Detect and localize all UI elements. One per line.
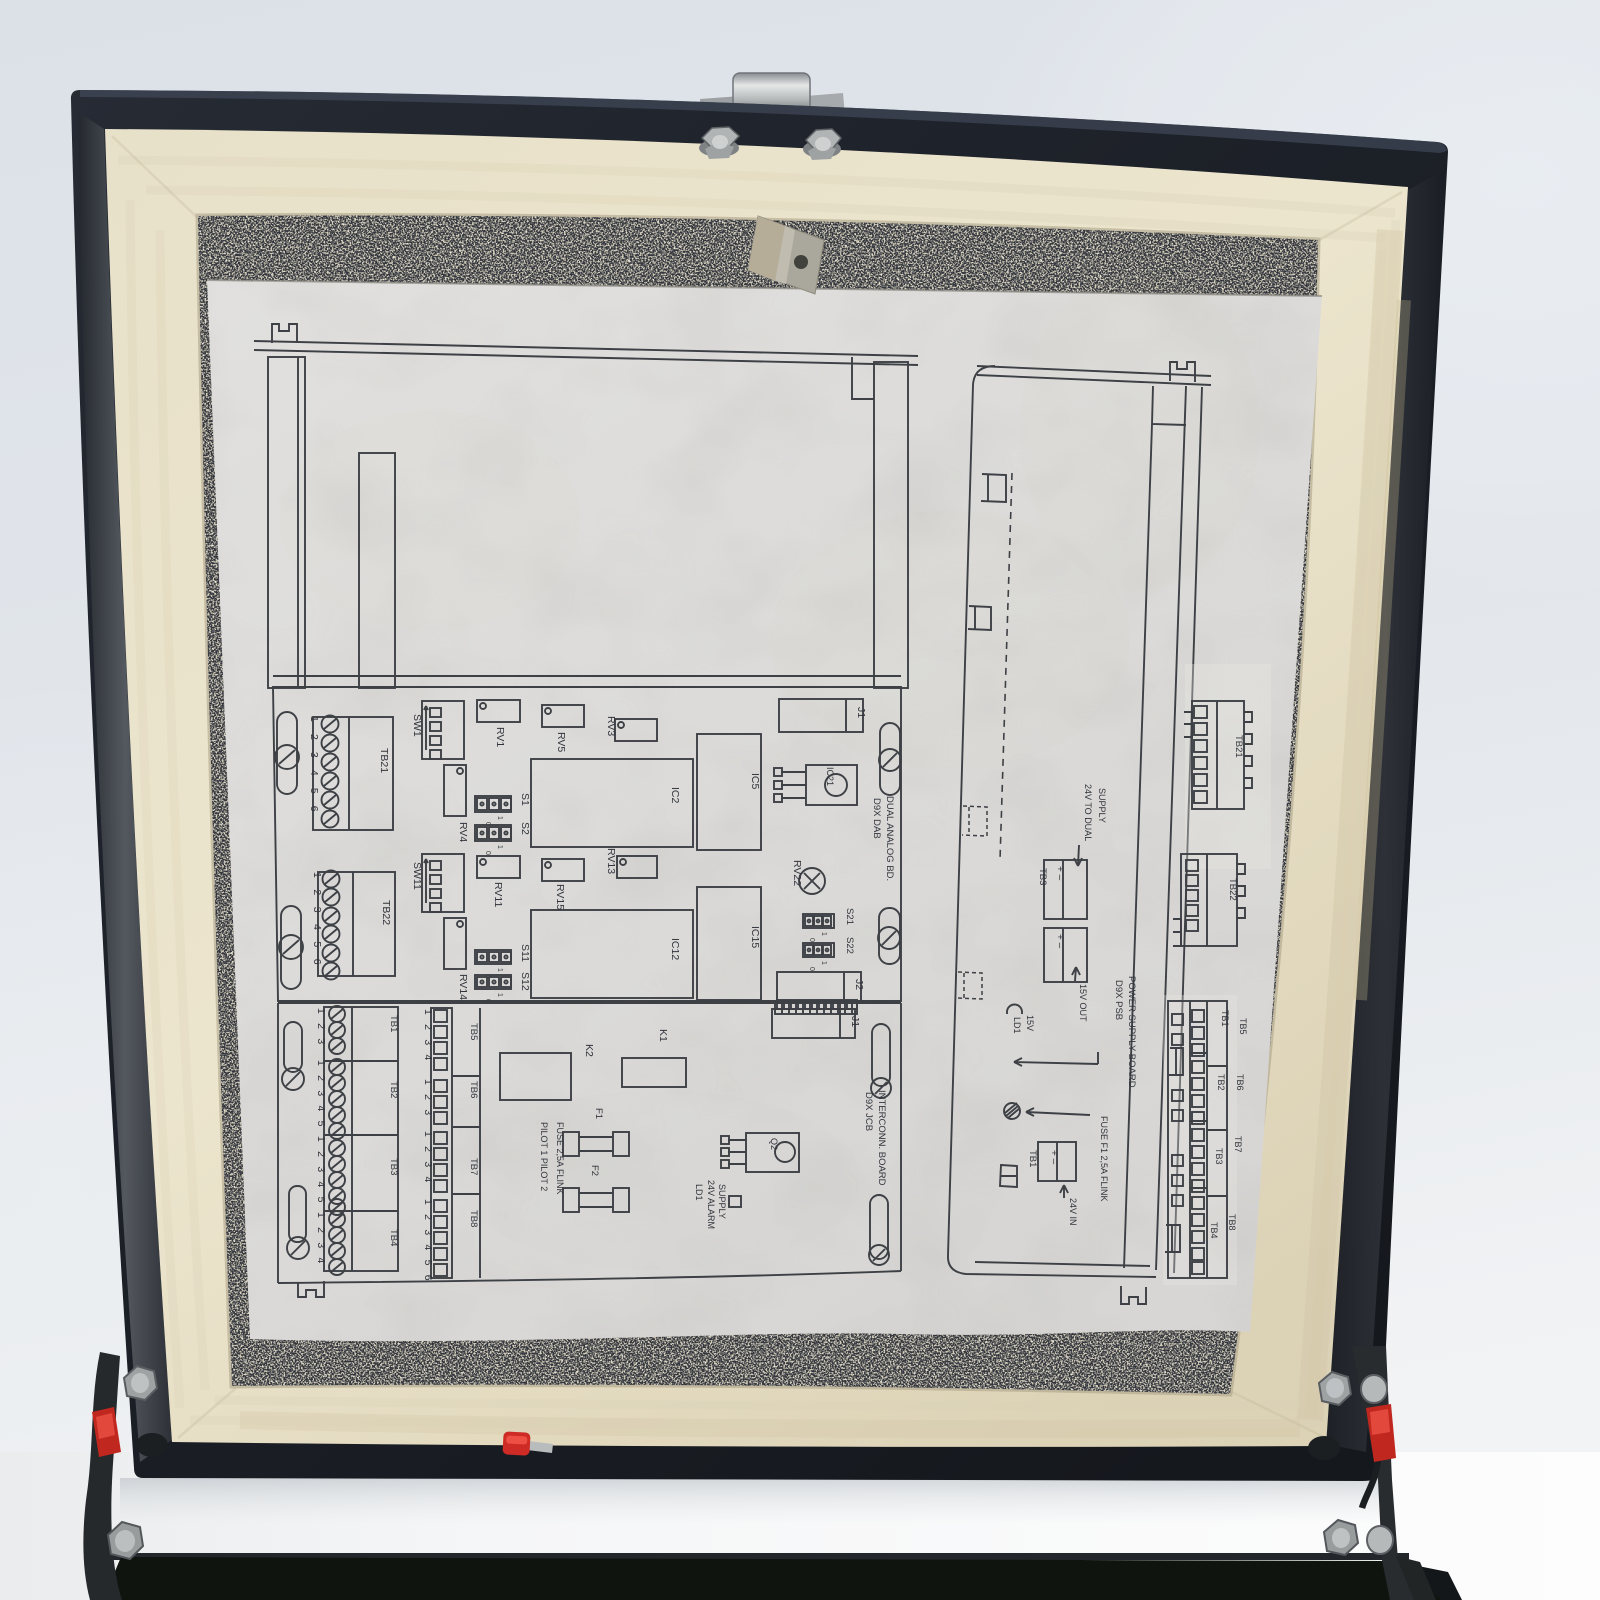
svg-text:24V IN: 24V IN — [1068, 1198, 1078, 1226]
svg-text:1: 1 — [496, 993, 503, 997]
svg-text:SUPPLY: SUPPLY — [717, 1184, 727, 1219]
svg-text:1: 1 — [496, 816, 503, 820]
svg-text:S1: S1 — [519, 793, 531, 806]
svg-text:IC15: IC15 — [749, 926, 761, 948]
svg-text:SW11: SW11 — [411, 862, 423, 890]
svg-text:SUPPLY: SUPPLY — [1097, 788, 1107, 823]
svg-text:S12: S12 — [519, 972, 531, 991]
svg-text:1 2 3: 1 2 3 — [422, 1079, 434, 1118]
svg-text:TB6: TB6 — [468, 1081, 479, 1098]
svg-text:1 2 3 4 5: 1 2 3 4 5 — [315, 1060, 327, 1130]
svg-text:TB2: TB2 — [1216, 1074, 1226, 1091]
svg-text:0: 0 — [484, 999, 491, 1003]
svg-text:Q2: Q2 — [769, 1138, 779, 1150]
svg-text:D9X PSB: D9X PSB — [1113, 980, 1124, 1020]
svg-text:RV4: RV4 — [457, 822, 469, 842]
svg-text:15V OUT: 15V OUT — [1078, 984, 1088, 1022]
svg-text:S21: S21 — [844, 908, 855, 925]
svg-text:J1: J1 — [855, 707, 867, 718]
svg-text:0: 0 — [484, 851, 491, 855]
svg-text:1: 1 — [496, 845, 503, 849]
svg-text:RV13: RV13 — [605, 848, 617, 874]
svg-text:S2: S2 — [519, 822, 531, 835]
svg-text:TB22: TB22 — [1227, 878, 1238, 901]
svg-text:IC5: IC5 — [749, 773, 761, 790]
svg-text:TB2: TB2 — [388, 1081, 399, 1098]
svg-text:1: 1 — [496, 968, 503, 972]
svg-text:DUAL ANALOG BD.: DUAL ANALOG BD. — [884, 796, 895, 881]
svg-text:TB6: TB6 — [1235, 1074, 1245, 1091]
svg-text:1 2 3 4 5 6: 1 2 3 4 5 6 — [308, 716, 320, 816]
svg-text:PILOT 1 PILOT 2: PILOT 1 PILOT 2 — [539, 1122, 549, 1191]
svg-text:TB3: TB3 — [388, 1158, 399, 1175]
svg-text:1 2 3 4: 1 2 3 4 — [315, 1212, 327, 1267]
svg-text:+ –: + – — [1054, 866, 1065, 881]
svg-text:K2: K2 — [583, 1044, 595, 1057]
svg-text:TB1: TB1 — [1027, 1150, 1038, 1167]
svg-text:1 2 3 4: 1 2 3 4 — [422, 1009, 434, 1064]
svg-text:TB1: TB1 — [388, 1015, 399, 1032]
svg-text:S11: S11 — [519, 944, 531, 962]
svg-text:RV22: RV22 — [791, 860, 803, 886]
svg-text:LD1: LD1 — [1012, 1017, 1022, 1034]
svg-text:TB8: TB8 — [1227, 1214, 1237, 1231]
svg-text:D9X DAB: D9X DAB — [871, 798, 882, 839]
svg-text:TB4: TB4 — [388, 1229, 399, 1246]
svg-text:TB1: TB1 — [1220, 1010, 1230, 1027]
svg-text:+ –: + – — [1048, 1150, 1059, 1165]
svg-text:LD1: LD1 — [694, 1184, 704, 1201]
svg-text:TB4: TB4 — [1209, 1222, 1219, 1239]
svg-text:0: 0 — [484, 974, 491, 978]
svg-text:0: 0 — [808, 938, 815, 942]
svg-text:RV11: RV11 — [492, 882, 504, 907]
svg-text:K1: K1 — [657, 1029, 669, 1042]
svg-text:TB21: TB21 — [378, 748, 390, 773]
svg-text:0: 0 — [484, 822, 491, 826]
svg-text:RV14: RV14 — [457, 974, 469, 1000]
svg-text:1: 1 — [820, 961, 827, 965]
svg-text:TB8: TB8 — [468, 1210, 479, 1227]
svg-text:SW1: SW1 — [411, 714, 423, 737]
svg-text:F1: F1 — [593, 1108, 604, 1119]
svg-text:RV15: RV15 — [554, 884, 566, 910]
svg-text:1 2 3 4 5 6: 1 2 3 4 5 6 — [422, 1199, 434, 1284]
svg-text:1 2 3 4: 1 2 3 4 — [422, 1131, 434, 1186]
svg-text:F2: F2 — [589, 1165, 600, 1176]
svg-text:IC21: IC21 — [825, 767, 835, 786]
svg-text:FUSE F1 2,5A FLINK: FUSE F1 2,5A FLINK — [1099, 1116, 1109, 1202]
svg-text:1 2 3: 1 2 3 — [315, 1008, 327, 1047]
svg-text:FUSE 2,5A FLINK: FUSE 2,5A FLINK — [555, 1122, 565, 1195]
svg-text:1: 1 — [820, 932, 827, 936]
svg-text:J2: J2 — [853, 979, 865, 990]
svg-text:IC2: IC2 — [669, 787, 681, 804]
svg-text:0: 0 — [808, 967, 815, 971]
svg-text:TB22: TB22 — [380, 900, 392, 925]
svg-text:1 2 3 4 5 6: 1 2 3 4 5 6 — [311, 872, 323, 969]
svg-text:TB3: TB3 — [1037, 868, 1048, 885]
svg-text:RV5: RV5 — [555, 732, 567, 752]
svg-text:D9X JCB: D9X JCB — [863, 1092, 874, 1131]
svg-text:TB3: TB3 — [1214, 1148, 1224, 1165]
svg-text:TB7: TB7 — [1233, 1136, 1243, 1153]
svg-text:15V: 15V — [1025, 1015, 1035, 1031]
svg-text:1 2 3 4 5: 1 2 3 4 5 — [315, 1136, 327, 1206]
svg-text:POWER SUPPLY BOARD: POWER SUPPLY BOARD — [1126, 976, 1137, 1088]
svg-text:S22: S22 — [844, 937, 855, 954]
svg-text:TB5: TB5 — [468, 1023, 479, 1040]
svg-text:RV3: RV3 — [605, 716, 617, 736]
svg-text:TB7: TB7 — [468, 1158, 479, 1175]
svg-text:24V TO DUAL: 24V TO DUAL — [1083, 784, 1093, 841]
svg-text:TB5: TB5 — [1238, 1018, 1248, 1035]
svg-text:INTERCONN. BOARD: INTERCONN. BOARD — [876, 1090, 887, 1186]
svg-text:+ –: + – — [1054, 934, 1065, 949]
svg-text:IC12: IC12 — [669, 938, 681, 960]
svg-text:J1: J1 — [849, 1016, 861, 1027]
svg-text:RV1: RV1 — [494, 727, 506, 747]
svg-text:24V ALARM: 24V ALARM — [706, 1180, 716, 1229]
svg-text:TB21: TB21 — [1233, 735, 1244, 758]
